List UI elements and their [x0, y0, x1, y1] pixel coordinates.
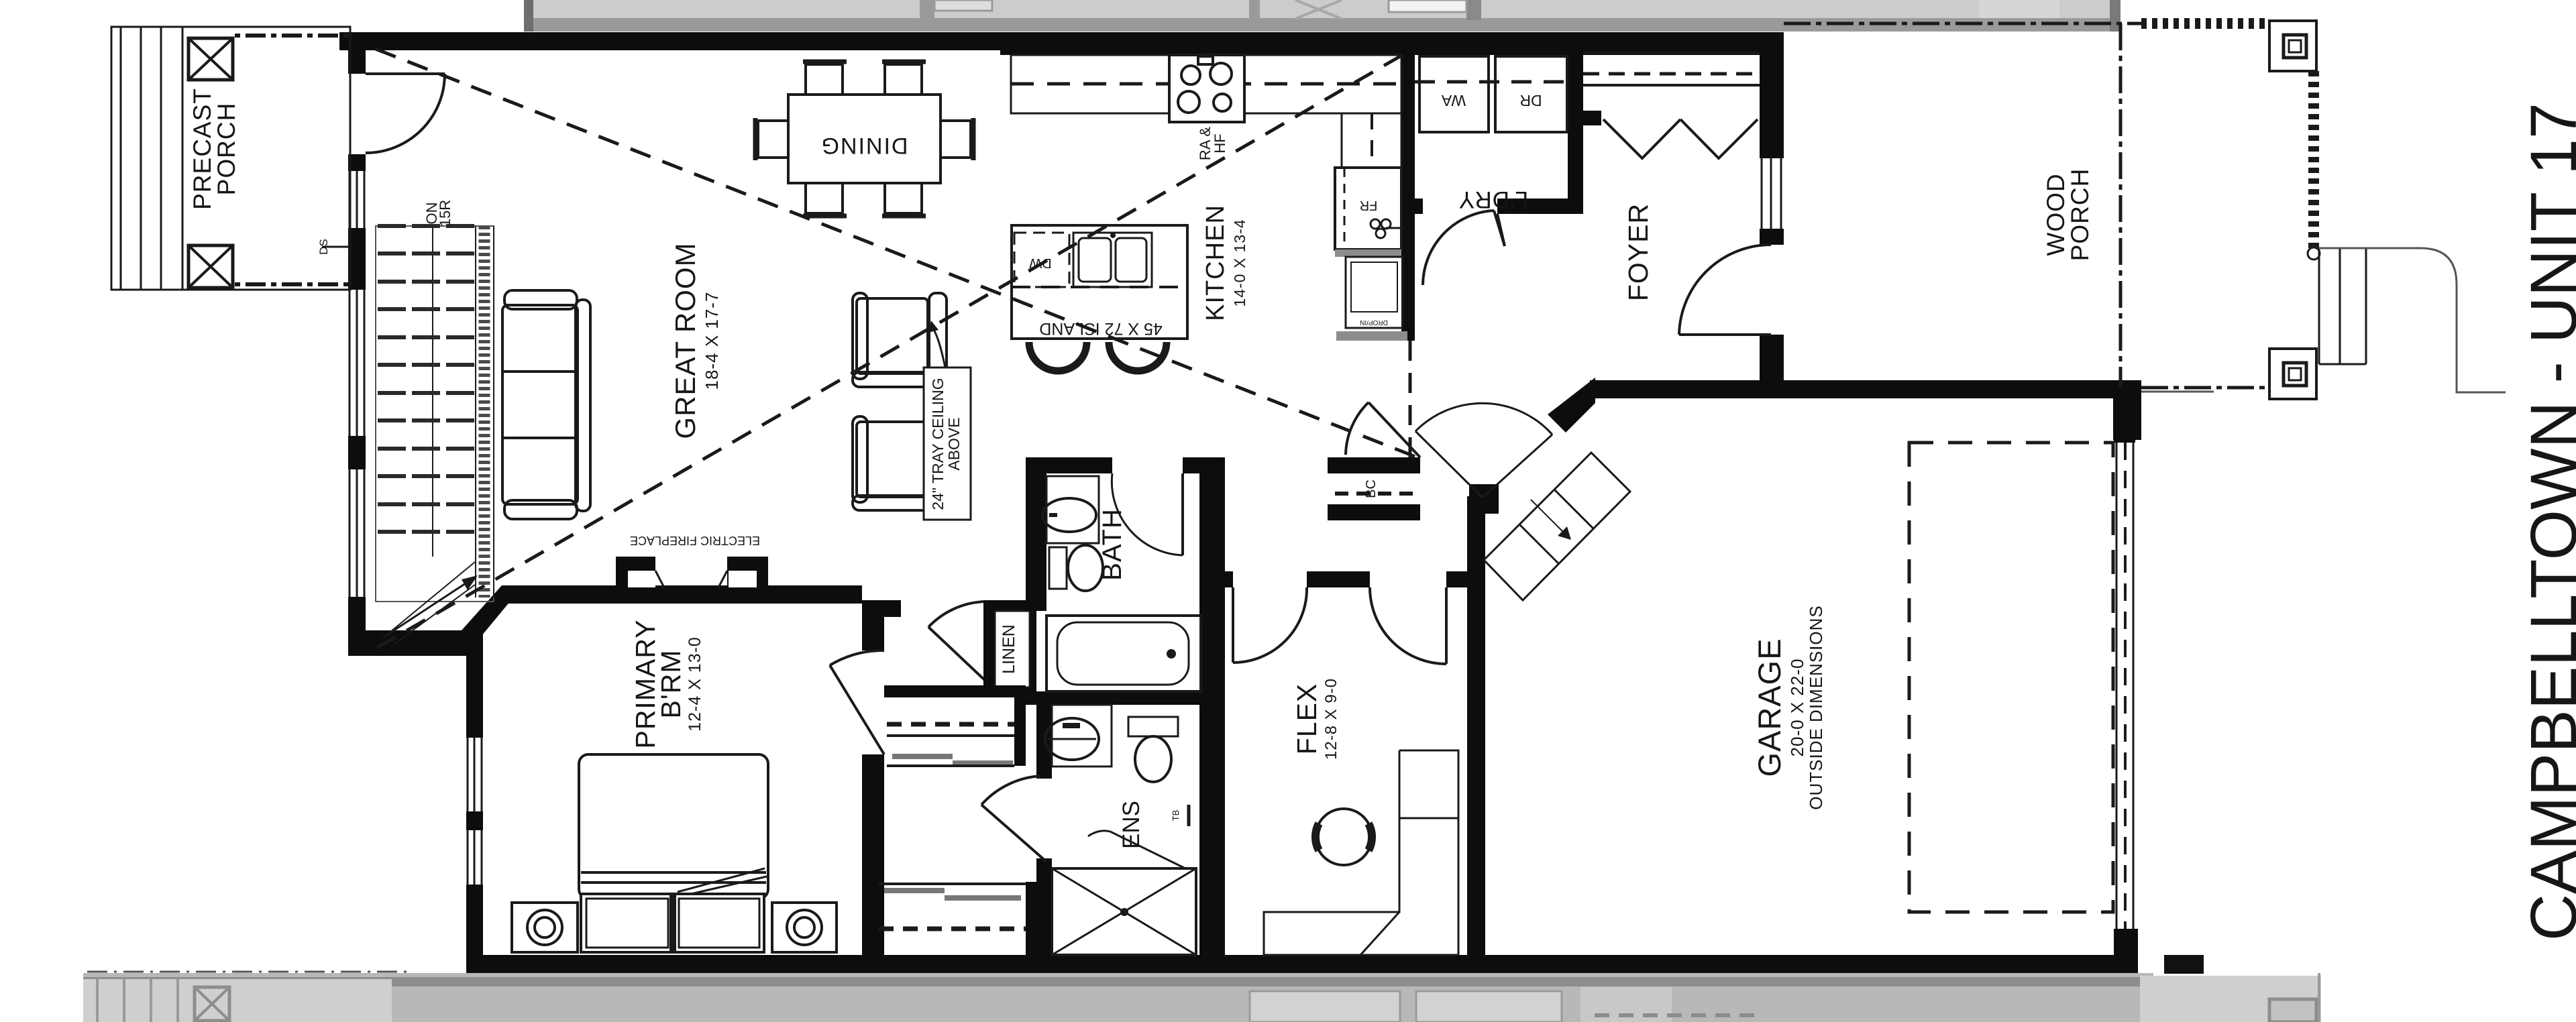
svg-text:WA: WA [1441, 92, 1466, 109]
svg-text:DR: DR [1519, 92, 1542, 109]
svg-text:L'DRY: L'DRY [1458, 186, 1528, 213]
svg-text:TB: TB [1171, 810, 1181, 821]
svg-text:LINEN: LINEN [1000, 624, 1018, 674]
svg-text:FR: FR [1360, 198, 1378, 213]
svg-text:ON15R: ON15R [423, 200, 453, 227]
svg-text:BATH: BATH [1097, 508, 1127, 581]
svg-text:PRECASTPORCH: PRECASTPORCH [189, 88, 240, 210]
svg-text:DINING: DINING [820, 133, 908, 158]
svg-text:DROP/IN: DROP/IN [1360, 319, 1388, 326]
svg-text:CAMPBELLTOWN - UNIT 17: CAMPBELLTOWN - UNIT 17 [2517, 103, 2576, 941]
svg-text:BC: BC [1364, 479, 1379, 498]
svg-text:ENS: ENS [1118, 801, 1144, 849]
svg-text:DS: DS [317, 239, 330, 255]
svg-text:KITCHEN14-0 X 13-4: KITCHEN14-0 X 13-4 [1201, 205, 1248, 321]
svg-text:DW: DW [1029, 255, 1051, 270]
svg-text:WOODPORCH: WOODPORCH [2042, 168, 2094, 262]
svg-text:ELECTRIC FIREPLACE: ELECTRIC FIREPLACE [630, 534, 760, 547]
svg-text:45 X 72 ISLAND: 45 X 72 ISLAND [1039, 319, 1162, 338]
svg-text:FOYER: FOYER [1623, 203, 1654, 301]
svg-text:FLEX12-8 X 9-0: FLEX12-8 X 9-0 [1291, 678, 1340, 760]
